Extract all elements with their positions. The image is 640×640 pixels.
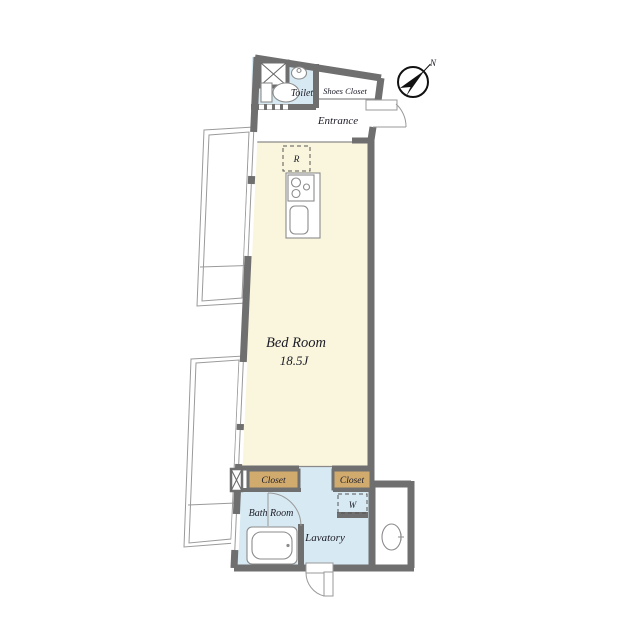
service-exit-door — [306, 563, 333, 596]
shoes-closet-label: Shoes Closet — [323, 86, 367, 96]
closet-left-label: Closet — [261, 476, 286, 486]
entrance-label: Entrance — [317, 115, 358, 127]
bathtub — [247, 527, 297, 564]
refrigerator-symbol: R — [293, 155, 300, 165]
bathroom-label: Bath Room — [249, 508, 294, 519]
pipe-shaft-bottom — [231, 469, 242, 491]
bedroom-size-label: 18.5J — [280, 353, 310, 368]
toilet-label: Toilet — [291, 88, 314, 99]
vanity-sink — [382, 524, 404, 550]
closet-right-label: Closet — [340, 476, 365, 486]
entrance-door — [366, 100, 406, 127]
kitchen-counter — [286, 173, 320, 238]
floor-plan-page: N Toilet Shoes Closet Entrance R Bed Roo… — [0, 0, 640, 640]
bedroom-label: Bed Room — [266, 335, 326, 351]
toilet-hand-basin — [292, 67, 307, 79]
lavatory-label: Lavatory — [304, 532, 345, 544]
compass-icon: N — [398, 58, 437, 97]
compass-north-label: N — [429, 58, 437, 68]
floor-plan-drawing: N Toilet Shoes Closet Entrance R Bed Roo… — [0, 0, 640, 640]
